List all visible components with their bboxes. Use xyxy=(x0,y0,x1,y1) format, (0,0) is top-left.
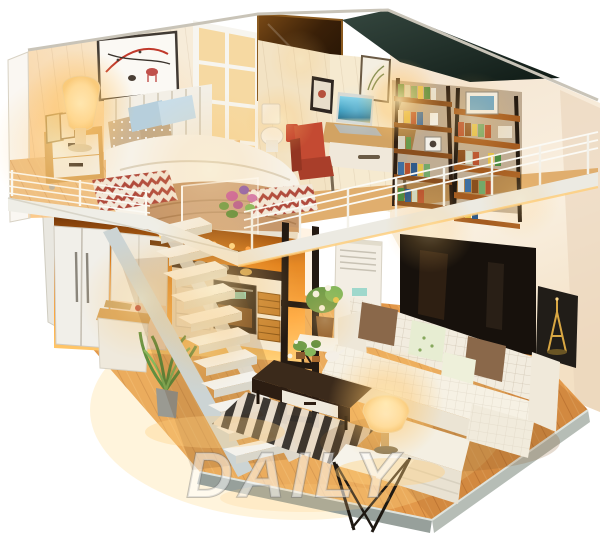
watermark: DAILY xyxy=(186,439,403,511)
dollhouse-photo: DAILY xyxy=(0,0,600,541)
scene-canvas: DAILY xyxy=(0,0,600,541)
